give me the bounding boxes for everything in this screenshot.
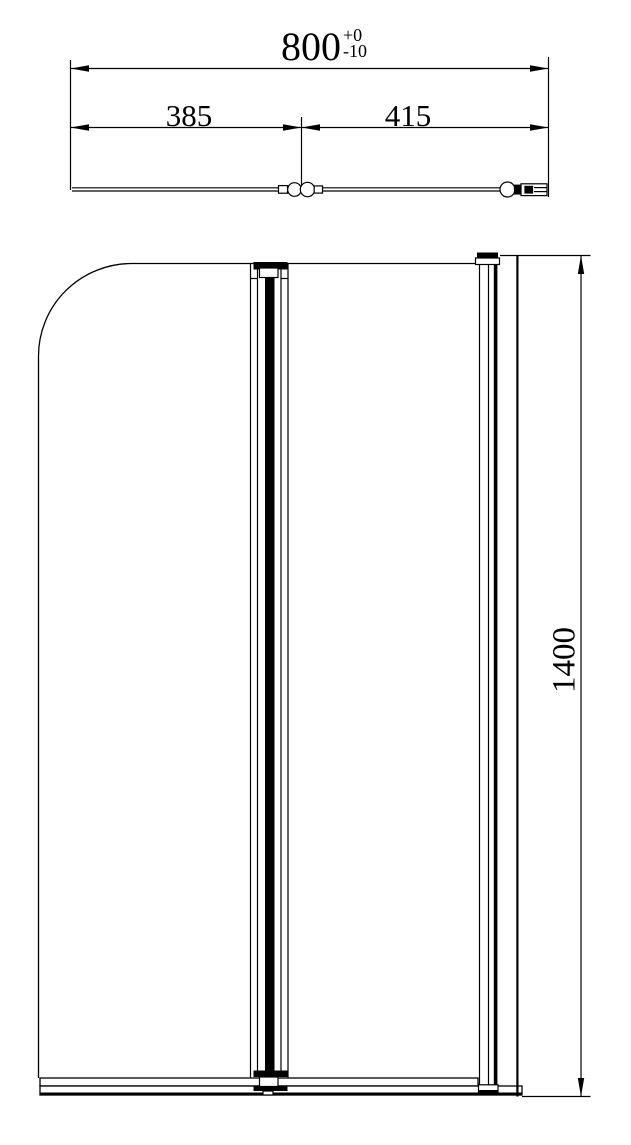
wall-bracket-plan xyxy=(500,182,547,197)
hinge-strip xyxy=(265,278,275,1071)
hinge-plan-middle xyxy=(279,182,323,196)
technical-drawing-canvas: 800 +0 -10 385 415 1400 xyxy=(0,0,631,1145)
tolerance-lower: -10 xyxy=(343,43,367,59)
dimension-arrows-plan xyxy=(71,65,549,130)
overall-width-dimension-label: 800 +0 -10 xyxy=(281,27,367,67)
glass-panel-plan-left xyxy=(72,188,280,191)
left-door-panel xyxy=(39,264,479,1079)
wall-profile-top-cap xyxy=(477,253,498,259)
hinge-column xyxy=(251,262,289,1095)
wall-line xyxy=(516,255,518,1097)
left-segment-dimension-label: 385 xyxy=(166,100,213,131)
right-segment-dimension-label: 415 xyxy=(385,100,432,131)
front-view xyxy=(39,253,591,1097)
height-dimension-label: 1400 xyxy=(549,627,582,693)
hinge-top-detail xyxy=(251,262,289,279)
top-view xyxy=(71,57,549,197)
drawing-linework xyxy=(0,0,631,1145)
tolerance-stack: +0 -10 xyxy=(343,27,367,59)
overall-width-value: 800 xyxy=(281,27,341,67)
glass-panel-plan-right xyxy=(323,188,501,191)
wall-profile xyxy=(476,253,500,1093)
